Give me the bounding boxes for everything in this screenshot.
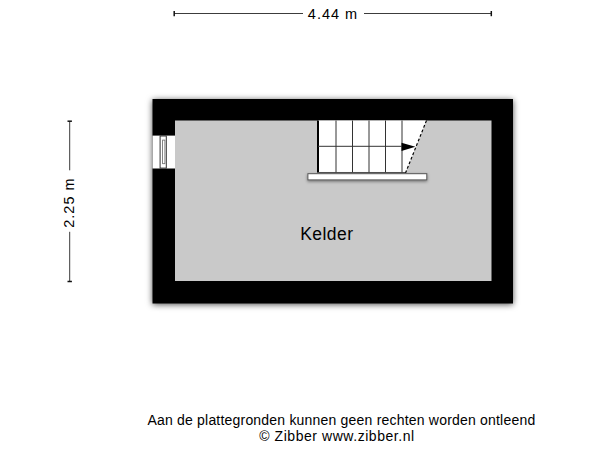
svg-text:© Zibber www.zibber.nl: © Zibber www.zibber.nl: [259, 428, 414, 444]
svg-text:Kelder: Kelder: [300, 224, 353, 244]
svg-text:2.25 m: 2.25 m: [61, 177, 77, 227]
svg-text:4.44 m: 4.44 m: [308, 6, 358, 22]
svg-text:Aan de plattegronden kunnen ge: Aan de plattegronden kunnen geen rechten…: [147, 412, 535, 428]
